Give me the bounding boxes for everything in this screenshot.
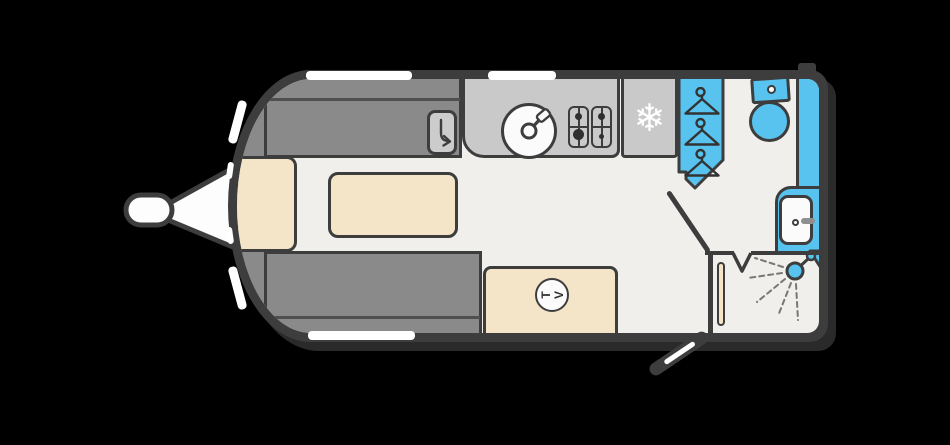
basin-tap xyxy=(801,218,815,224)
sofa-backrest-divider xyxy=(237,98,460,101)
lounge-sofa-bottom xyxy=(237,251,482,333)
washroom-door-panel xyxy=(717,262,725,326)
door-panel-stripe xyxy=(663,341,696,365)
washroom-partition xyxy=(708,251,713,333)
burner xyxy=(598,113,605,120)
front-seat-cushion xyxy=(237,156,297,252)
washroom-door-open xyxy=(666,190,711,253)
tv-label: TV xyxy=(539,288,565,302)
sink-icon xyxy=(501,103,557,159)
shower-head-icon xyxy=(787,263,803,279)
tap-icon xyxy=(504,106,554,156)
floorplan-canvas: ❄ xyxy=(0,0,950,445)
burner xyxy=(573,129,584,140)
hob-icon xyxy=(568,106,589,148)
burner xyxy=(599,134,604,139)
caravan-floor: ❄ xyxy=(237,79,819,333)
kitchen-worktop xyxy=(462,79,620,158)
flush-button xyxy=(767,85,777,95)
door-fold-marker xyxy=(733,253,751,271)
tv-badge: TV xyxy=(535,278,569,312)
fridge: ❄ xyxy=(621,79,678,158)
washroom-wall xyxy=(751,251,819,255)
storage-unit xyxy=(427,110,457,155)
tow-ball xyxy=(126,195,172,225)
window-top-left xyxy=(306,71,412,80)
burner xyxy=(575,113,582,120)
lounge-table xyxy=(328,172,458,238)
window-top-kitchen xyxy=(488,71,556,80)
hob-icon xyxy=(591,106,612,148)
coat-hangers-icon xyxy=(682,87,722,181)
toilet-bowl xyxy=(749,101,790,142)
roof-vent xyxy=(798,63,816,75)
washroom-wet-wall xyxy=(796,79,819,190)
lounge-sofa-top xyxy=(237,79,462,158)
tv-cabinet: TV xyxy=(483,266,618,333)
curved-arrow-icon xyxy=(430,113,454,152)
sofa-backrest-divider xyxy=(237,316,480,319)
plug-hole xyxy=(792,219,799,226)
window-bottom xyxy=(308,331,415,340)
snowflake-icon: ❄ xyxy=(634,95,666,137)
